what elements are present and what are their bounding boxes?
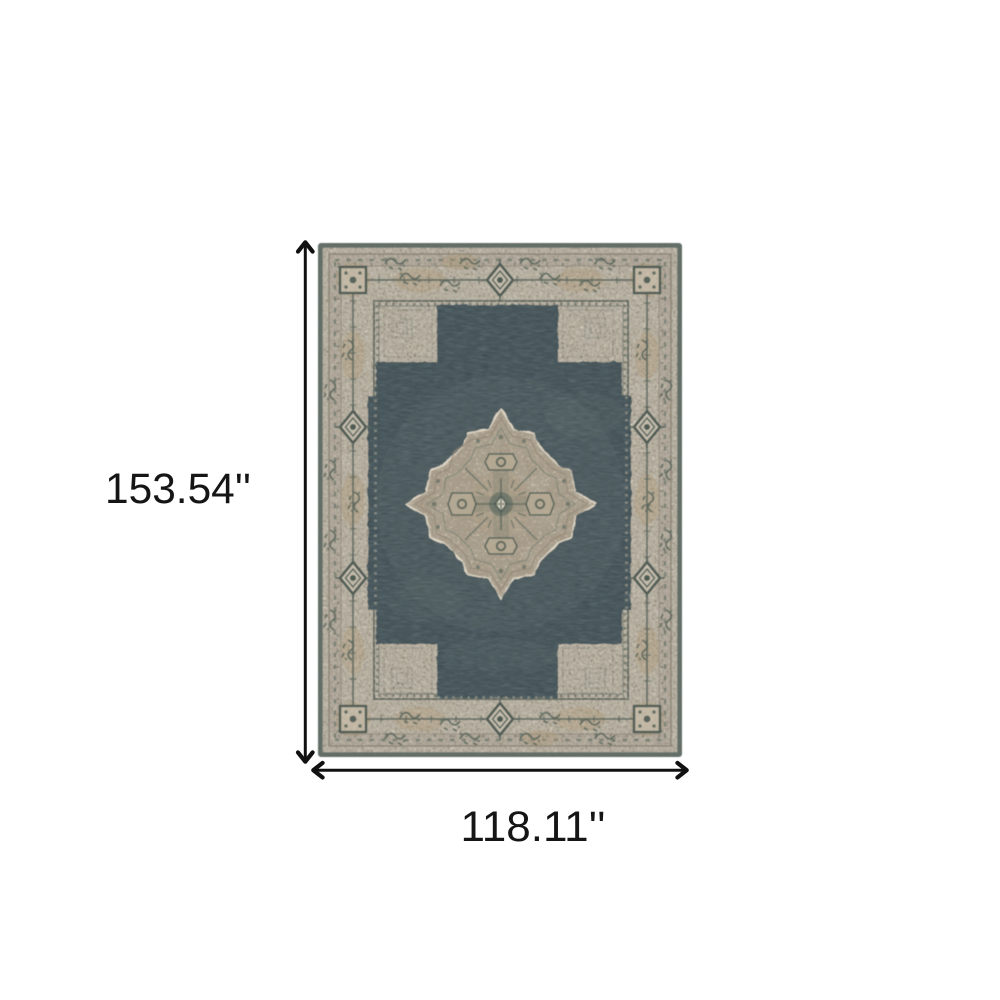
svg-text:118.11'': 118.11'' bbox=[461, 803, 606, 851]
svg-text:153.54'': 153.54'' bbox=[105, 465, 251, 513]
